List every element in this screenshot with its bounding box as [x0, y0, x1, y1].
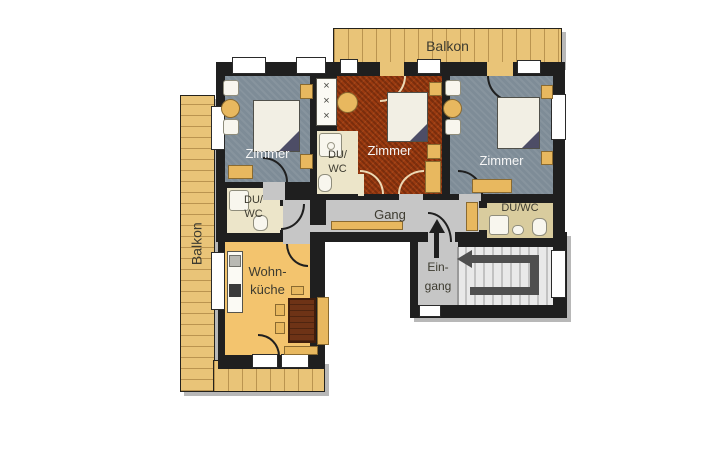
- stool: [223, 80, 239, 96]
- wardrobe: × × ×: [316, 78, 337, 126]
- balcony-top-label: Balkon: [333, 38, 562, 56]
- window: [296, 57, 326, 74]
- nightstand: [300, 84, 313, 99]
- nightstand: [429, 82, 442, 96]
- wall-pillar: [310, 197, 326, 225]
- entrance-arrow-icon: [429, 219, 445, 233]
- balcony-door-opening-middle: [380, 62, 404, 76]
- blanket-fold: [410, 124, 427, 141]
- balcony-door-opening-right: [487, 62, 513, 76]
- corner-bench: [284, 346, 318, 355]
- bench: [472, 179, 512, 193]
- door-opening-duwc-right: [479, 208, 487, 230]
- shower: [489, 215, 509, 235]
- window: [252, 354, 278, 368]
- bed: [497, 97, 540, 149]
- wardrobe-hanger-marks: × × ×: [323, 80, 329, 122]
- floorplan-canvas: Balkon Balkon: [0, 0, 716, 450]
- room-label-zimmer-left: Zimmer: [225, 146, 310, 162]
- bench: [228, 165, 253, 179]
- room-label-duwc-right: DU/WC: [487, 202, 553, 216]
- wardrobe: [425, 161, 441, 193]
- blanket-fold: [522, 131, 539, 148]
- stool: [445, 119, 461, 135]
- round-table: [337, 92, 358, 113]
- window: [417, 59, 441, 74]
- stool: [443, 99, 462, 118]
- stair-arrow-bar: [470, 255, 536, 263]
- nightstand: [541, 85, 553, 99]
- window: [232, 57, 266, 74]
- stair-arrow-bar: [470, 287, 536, 295]
- stool: [445, 80, 461, 96]
- house-entrance-opening: [419, 305, 441, 317]
- room-label-gang: Gang: [350, 207, 430, 223]
- chair: [275, 322, 285, 334]
- window: [281, 354, 309, 368]
- room-label-duwc-left: DU/ WC: [227, 194, 280, 222]
- corner-bench: [317, 297, 329, 345]
- window: [551, 250, 566, 298]
- dining-table: [288, 298, 316, 343]
- room-label-zimmer-right: Zimmer: [450, 153, 553, 169]
- room-label-eingang: Ein- gang: [412, 258, 464, 296]
- stool: [223, 119, 239, 135]
- toilet: [532, 218, 547, 236]
- window: [211, 252, 225, 310]
- room-label-wohnkueche: Wohn- küche: [225, 263, 310, 299]
- window: [340, 59, 358, 74]
- bed: [387, 92, 428, 142]
- door-opening-zimmer-middle: [399, 194, 423, 201]
- toilet: [318, 174, 332, 192]
- balcony-left-label: Balkon: [189, 222, 207, 265]
- entrance-arrow-shaft: [434, 232, 439, 258]
- room-label-duwc-middle: DU/ WC: [317, 149, 358, 177]
- wardrobe: [466, 202, 478, 231]
- chair: [275, 304, 285, 316]
- bed: [253, 100, 300, 152]
- balcony-left: Balkon: [180, 95, 215, 392]
- window: [517, 60, 541, 74]
- door-opening-zimmer-right: [459, 194, 481, 201]
- window: [551, 94, 566, 140]
- stool: [221, 99, 240, 118]
- sink: [512, 225, 524, 235]
